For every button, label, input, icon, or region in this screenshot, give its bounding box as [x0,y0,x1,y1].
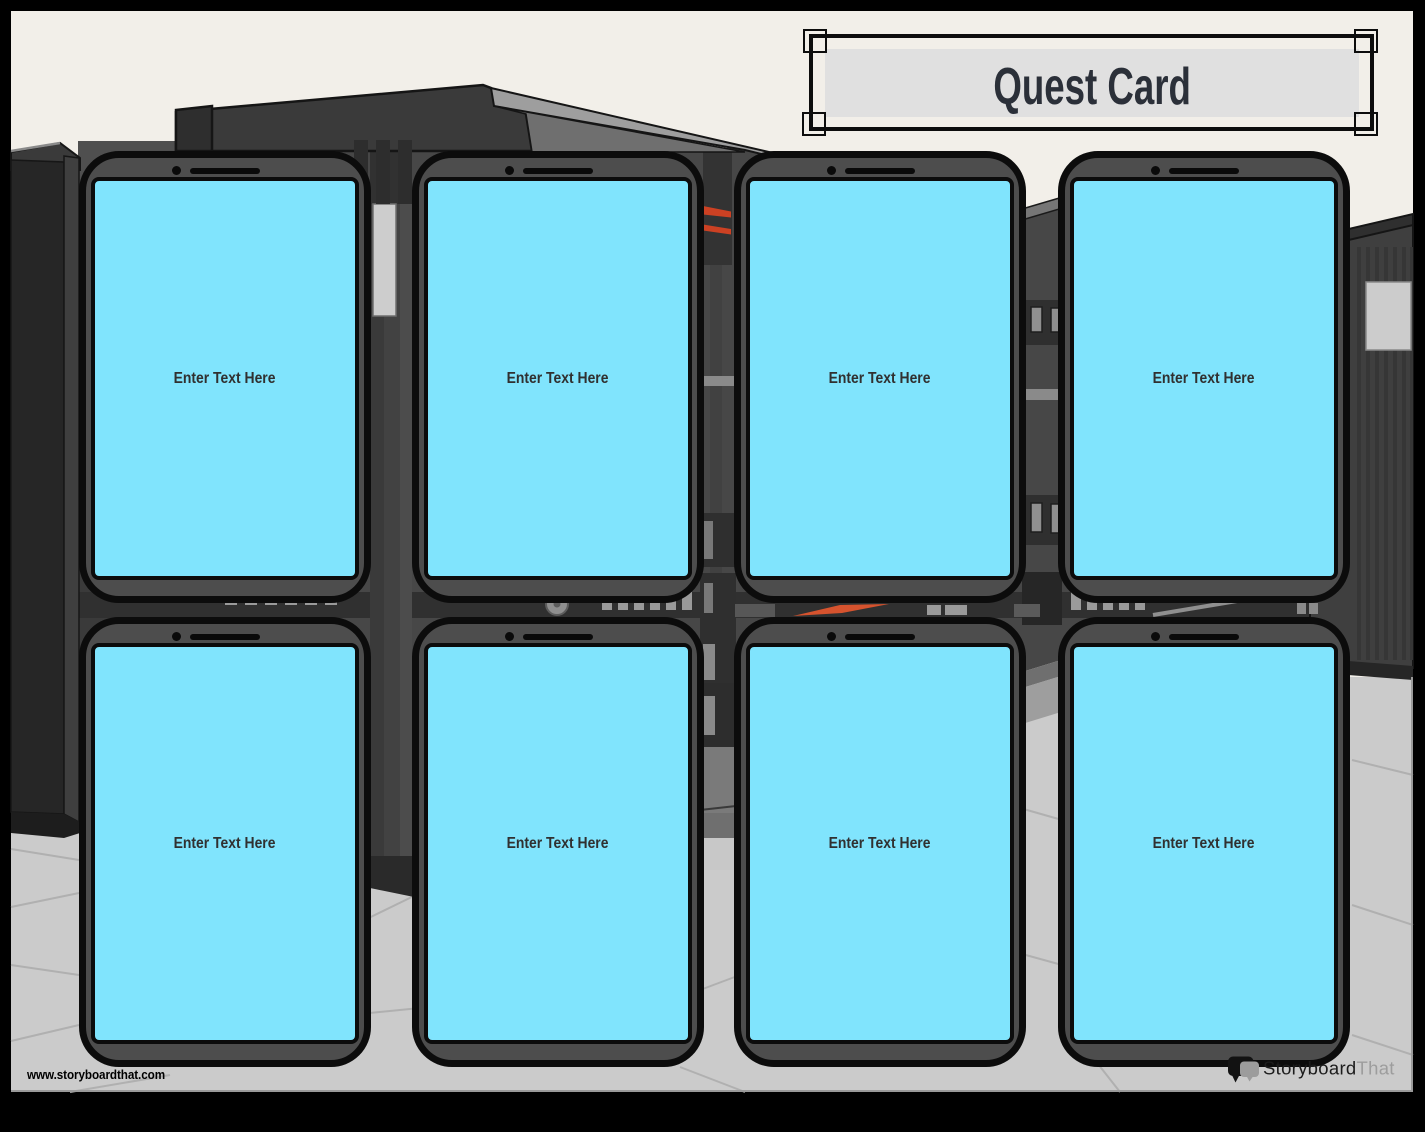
svg-text:StoryboardThat: StoryboardThat [1263,1058,1395,1079]
